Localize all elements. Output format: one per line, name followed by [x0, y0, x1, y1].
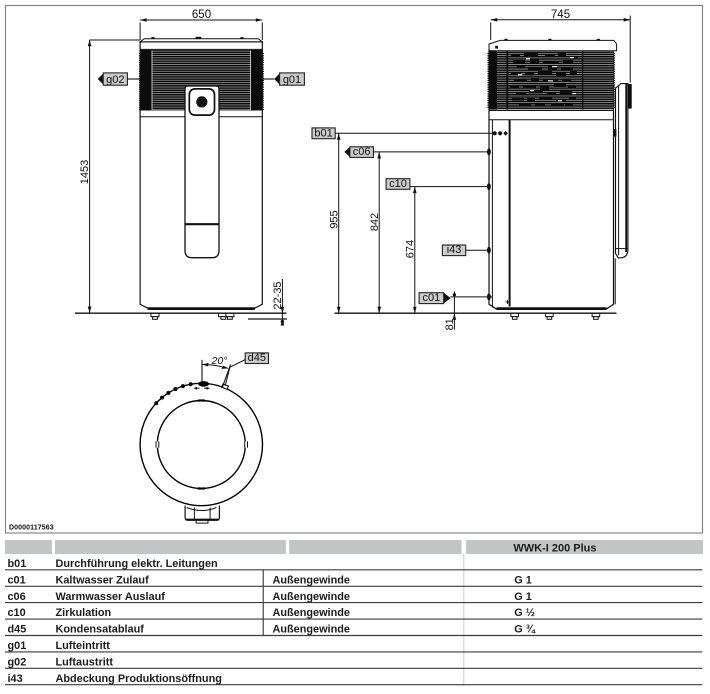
svg-text:i43: i43 — [8, 673, 23, 685]
svg-text:b01: b01 — [8, 558, 27, 570]
svg-text:g02: g02 — [8, 656, 27, 668]
svg-text:Außengewinde: Außengewinde — [273, 574, 350, 586]
svg-text:Kaltwasser Zulauf: Kaltwasser Zulauf — [56, 574, 150, 586]
svg-text:c06: c06 — [8, 591, 26, 603]
svg-text:Außengewinde: Außengewinde — [273, 607, 350, 619]
svg-text:842: 842 — [369, 213, 381, 231]
svg-text:G 1: G 1 — [514, 591, 532, 603]
svg-text:i43: i43 — [447, 244, 462, 256]
svg-text:Außengewinde: Außengewinde — [273, 624, 350, 636]
svg-text:d45: d45 — [8, 624, 27, 636]
svg-text:1453: 1453 — [79, 160, 91, 184]
svg-text:g02: g02 — [106, 74, 124, 86]
svg-text:c01: c01 — [423, 292, 441, 304]
svg-text:650: 650 — [192, 9, 211, 21]
svg-text:WWK-I 200 Plus: WWK-I 200 Plus — [513, 543, 596, 555]
svg-text:955: 955 — [328, 210, 340, 228]
svg-text:Abdeckung Produktionsöffnung: Abdeckung Produktionsöffnung — [56, 673, 222, 685]
svg-text:Lufteintritt: Lufteintritt — [56, 640, 111, 652]
svg-text:c01: c01 — [8, 574, 26, 586]
svg-text:Außengewinde: Außengewinde — [273, 591, 350, 603]
svg-text:Kondensatablauf: Kondensatablauf — [56, 624, 145, 636]
svg-text:81: 81 — [444, 318, 456, 330]
svg-text:g01: g01 — [8, 640, 27, 652]
svg-text:Warmwasser Auslauf: Warmwasser Auslauf — [56, 591, 166, 603]
svg-text:Durchführung elektr. Leitungen: Durchführung elektr. Leitungen — [56, 558, 218, 570]
svg-text:22-35: 22-35 — [272, 281, 284, 309]
svg-text:20°: 20° — [211, 355, 228, 367]
svg-text:D0000117563: D0000117563 — [9, 525, 54, 532]
svg-text:c06: c06 — [353, 146, 371, 158]
svg-text:c10: c10 — [8, 607, 26, 619]
svg-text:g01: g01 — [283, 74, 301, 86]
svg-text:G 1: G 1 — [514, 574, 532, 586]
svg-text:745: 745 — [551, 9, 570, 21]
svg-text:G ½: G ½ — [514, 607, 535, 619]
svg-text:Zirkulation: Zirkulation — [56, 607, 112, 619]
svg-text:Luftaustritt: Luftaustritt — [56, 656, 114, 668]
svg-text:c10: c10 — [389, 178, 407, 190]
svg-text:G ¾: G ¾ — [514, 624, 535, 636]
svg-text:b01: b01 — [314, 127, 332, 139]
svg-text:d45: d45 — [248, 352, 266, 364]
svg-text:674: 674 — [405, 240, 417, 258]
